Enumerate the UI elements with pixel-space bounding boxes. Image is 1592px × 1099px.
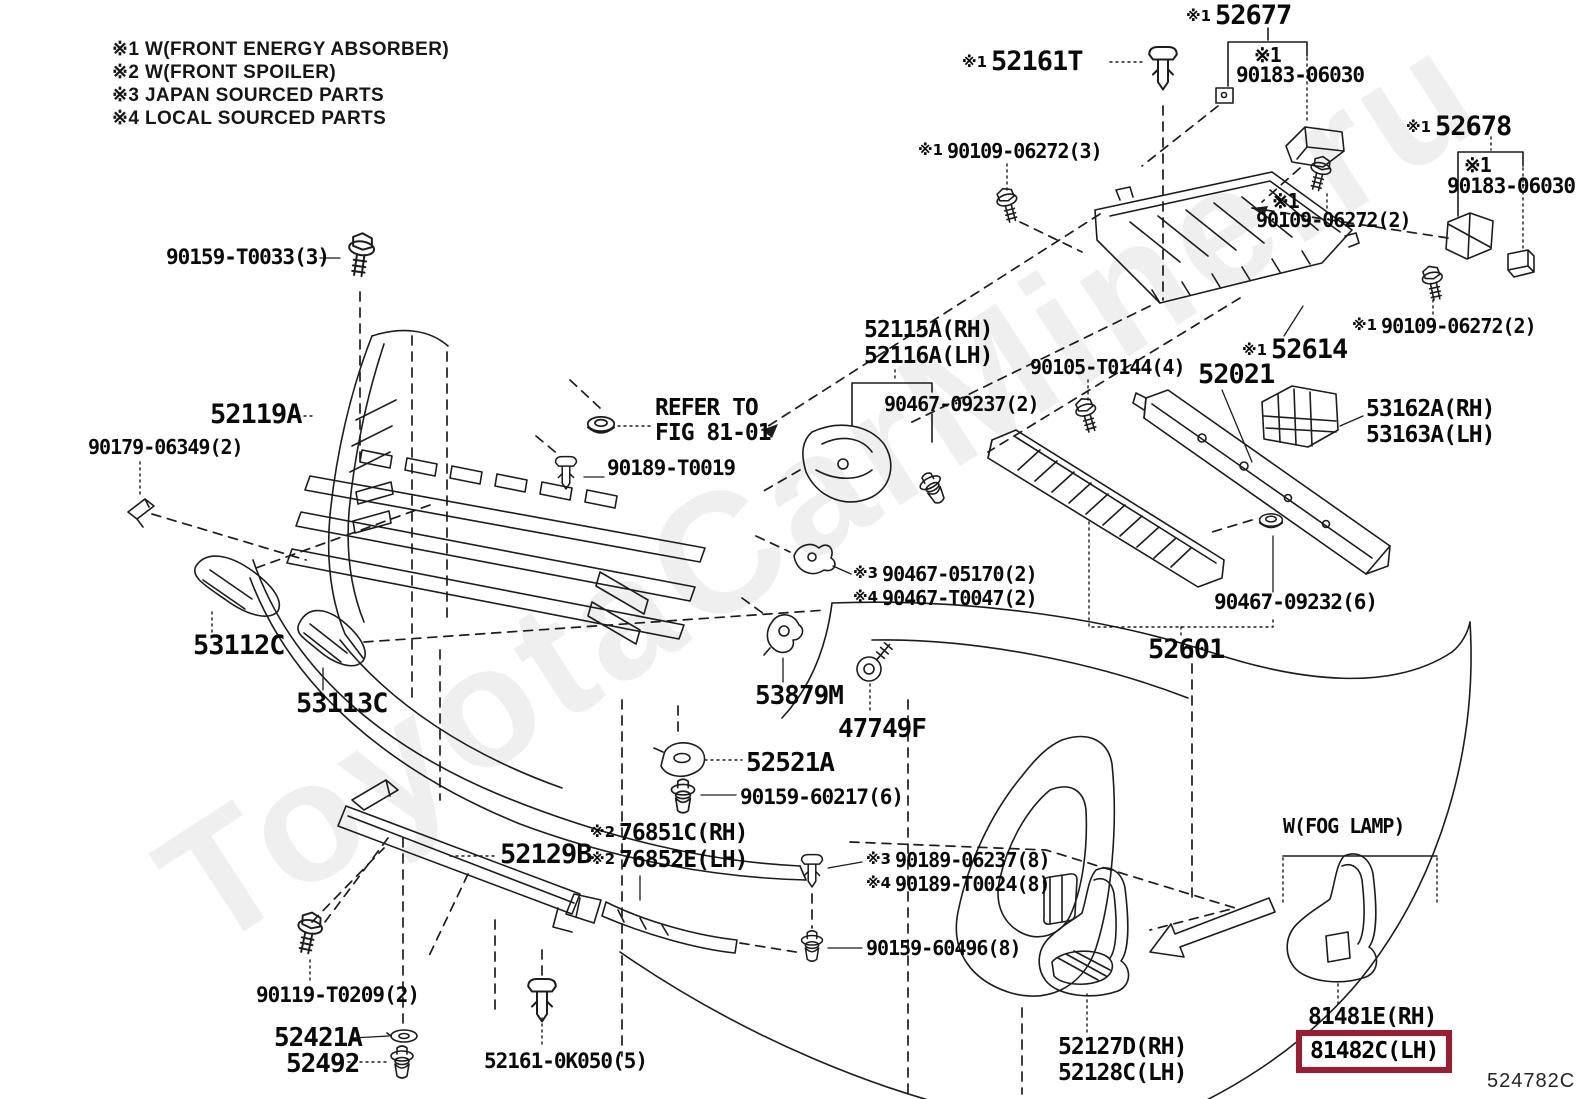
part-label-90189-06237[interactable]: ※390189-06237(8) xyxy=(866,850,1050,871)
part-label-90109-06272-2-right[interactable]: ※190109-06272(2) xyxy=(1352,316,1536,337)
ref-mark: ※1 xyxy=(1186,7,1211,25)
ref-mark: ※3 xyxy=(866,850,891,868)
ref-mark: ※2 xyxy=(590,823,615,841)
part-label-52128c[interactable]: 52128C(LH) xyxy=(1058,1061,1186,1085)
part-label-53162a[interactable]: 53162A(RH) xyxy=(1366,397,1494,421)
highlight-box: 81482C(LH) xyxy=(1296,1030,1452,1073)
leader-lines xyxy=(140,62,1433,1062)
part-number: 76852E(LH) xyxy=(619,847,747,873)
part-label-52161-0k050[interactable]: 52161-0K050(5) xyxy=(484,1050,647,1072)
screw-icon-47749f xyxy=(857,641,893,681)
part-number: 90109-06272(3) xyxy=(947,139,1102,163)
screw-icon-52492 xyxy=(391,1046,413,1078)
part-label-90109-06272-2-grille[interactable]: 90109-06272(2) xyxy=(1256,210,1411,231)
parts-diagram-page: ToyotaCarMine.ru xyxy=(0,0,1592,1099)
clip-icon-90189-06237 xyxy=(802,855,823,887)
part-number: 90109-06272(2) xyxy=(1381,314,1536,338)
direction-arrow xyxy=(1150,898,1275,957)
part-label-52492[interactable]: 52492 xyxy=(286,1051,359,1078)
part-label-81482c[interactable]: 81482C(LH) xyxy=(1310,1038,1438,1064)
clip-icon-52161-0k050 xyxy=(528,979,556,1022)
part-label-90183-06030-right[interactable]: 90183-06030 xyxy=(1447,175,1575,197)
screw-icon-90467-09237 xyxy=(916,469,950,508)
part-label-90189-t0019[interactable]: 90189-T0019 xyxy=(607,457,735,479)
part-label-90105-t0144[interactable]: 90105-T0144(4) xyxy=(1030,357,1185,378)
part-label-81481e[interactable]: 81481E(RH) xyxy=(1308,1005,1436,1029)
bolt-icon-90109-2r xyxy=(1420,264,1447,301)
clip-icon-90179 xyxy=(128,499,154,527)
part-label-52521a[interactable]: 52521A xyxy=(746,750,834,777)
part-label-90467-09237[interactable]: 90467-09237(2) xyxy=(884,394,1039,415)
bolt-icon-90109-2g xyxy=(1306,154,1334,192)
part-label-52678[interactable]: ※152678 xyxy=(1406,113,1511,141)
bracket-53162-drawing xyxy=(1262,386,1338,447)
part-number: 52677 xyxy=(1215,0,1291,31)
part-label-53112c[interactable]: 53112C xyxy=(193,632,285,660)
bracket-52115-drawing xyxy=(803,425,891,502)
clip-icon-52161t xyxy=(1149,47,1177,90)
part-number: 90189-T0024(8) xyxy=(895,872,1050,896)
washer-icon-52421a xyxy=(387,1030,417,1042)
screw-icon-90159-60217 xyxy=(671,779,694,813)
ref-mark: ※1 xyxy=(962,53,987,71)
figure-code: 524782C xyxy=(1487,1071,1575,1092)
part-label-90467-09232[interactable]: 90467-09232(6) xyxy=(1214,591,1377,613)
part-label-52115a[interactable]: 52115A(RH) xyxy=(864,318,992,342)
part-number: 52678 xyxy=(1435,111,1511,142)
part-label-76851c[interactable]: ※276851C(RH) xyxy=(590,821,748,845)
cushion-icon-52521a xyxy=(654,743,705,776)
part-number: 90467-05170(2) xyxy=(882,562,1037,586)
garnish-53112c-drawing xyxy=(195,556,280,616)
part-label-90159-60217[interactable]: 90159-60217(6) xyxy=(740,786,903,808)
ref-mark: ※3 xyxy=(853,564,878,582)
spoiler-76851-drawing xyxy=(602,902,802,953)
screw-icon-90159-60496 xyxy=(802,931,823,961)
grille-reinforcement-drawing xyxy=(1095,172,1359,303)
part-label-52129b[interactable]: 52129B xyxy=(500,841,592,869)
part-label-90119-t0209[interactable]: 90119-T0209(2) xyxy=(256,984,419,1006)
part-label-53163a[interactable]: 53163A(LH) xyxy=(1366,423,1494,447)
ref-mark-90183-right: ※1 xyxy=(1464,155,1491,176)
ref-mark: ※1 xyxy=(1242,341,1267,359)
part-label-90183-06030-top[interactable]: 90183-06030 xyxy=(1236,64,1364,86)
bolt-icon-90105 xyxy=(1073,396,1102,434)
part-number: 52614 xyxy=(1271,334,1347,365)
mudguard-right-drawing xyxy=(1287,854,1376,982)
part-label-53113c[interactable]: 53113C xyxy=(296,690,388,718)
fog-lamp-note: W(FOG LAMP) xyxy=(1283,816,1404,837)
ref-mark: ※1 xyxy=(918,141,943,159)
part-label-90179-06349[interactable]: 90179-06349(2) xyxy=(88,437,243,458)
part-label-52127d[interactable]: 52127D(RH) xyxy=(1058,1035,1186,1059)
part-number: 90467-T0047(2) xyxy=(882,586,1037,610)
part-label-90467-05170[interactable]: ※390467-05170(2) xyxy=(853,564,1037,585)
refer-note-line2: FIG 81-01 xyxy=(655,421,771,445)
diagram-line-art xyxy=(0,0,1592,1099)
ref-mark: ※1 xyxy=(1406,118,1431,136)
part-label-52677[interactable]: ※152677 xyxy=(1186,2,1291,30)
bolt-icon-90119 xyxy=(293,910,325,955)
part-label-52021[interactable]: 52021 xyxy=(1198,361,1274,389)
legend-line-2: ※2 W(FRONT SPOILER) xyxy=(112,63,336,83)
part-label-76852e[interactable]: ※276852E(LH) xyxy=(590,848,748,872)
mudguard-left-drawing xyxy=(1039,868,1128,996)
part-number: 52161T xyxy=(991,46,1083,77)
ref-mark: ※4 xyxy=(866,874,891,892)
bolt-icon-90109-3 xyxy=(994,186,1022,224)
part-label-52116a[interactable]: 52116A(LH) xyxy=(864,344,992,368)
ref-mark: ※4 xyxy=(853,588,878,606)
bolt-icon-90159-t0033 xyxy=(345,232,376,278)
part-label-90159-t0033[interactable]: 90159-T0033(3) xyxy=(166,246,329,268)
part-label-52601[interactable]: 52601 xyxy=(1148,636,1224,664)
part-label-90109-06272-3[interactable]: ※190109-06272(3) xyxy=(918,141,1102,162)
part-label-90189-t0024[interactable]: ※490189-T0024(8) xyxy=(866,874,1050,895)
part-label-52119a[interactable]: 52119A xyxy=(210,401,302,429)
ref-mark: ※1 xyxy=(1352,316,1377,334)
reinforcement-bar-52021-drawing xyxy=(1133,390,1390,574)
part-label-47749f[interactable]: 47749F xyxy=(838,716,926,743)
part-number: 76851C(RH) xyxy=(619,820,747,846)
part-label-90159-60496[interactable]: 90159-60496(8) xyxy=(866,938,1021,959)
clip-icon-53879m xyxy=(764,615,803,655)
grommet-icon-refer xyxy=(588,417,614,433)
part-label-52161t[interactable]: ※152161T xyxy=(962,48,1083,76)
legend-line-3: ※3 JAPAN SOURCED PARTS xyxy=(112,86,384,106)
ref-mark: ※2 xyxy=(590,850,615,868)
part-number: 90189-06237(8) xyxy=(895,848,1050,872)
legend-line-1: ※1 W(FRONT ENERGY ABSORBER) xyxy=(112,40,449,60)
part-label-53879m[interactable]: 53879M xyxy=(755,683,843,710)
grommet-icon-90467-09232 xyxy=(1260,514,1283,528)
hook-icon-90467-05170 xyxy=(794,545,835,574)
refer-note-line1: REFER TO xyxy=(655,396,758,420)
clip-icon-90189-t0019 xyxy=(556,457,577,489)
part-label-90467-t0047[interactable]: ※490467-T0047(2) xyxy=(853,588,1037,609)
legend-line-4: ※4 LOCAL SOURCED PARTS xyxy=(112,109,386,129)
